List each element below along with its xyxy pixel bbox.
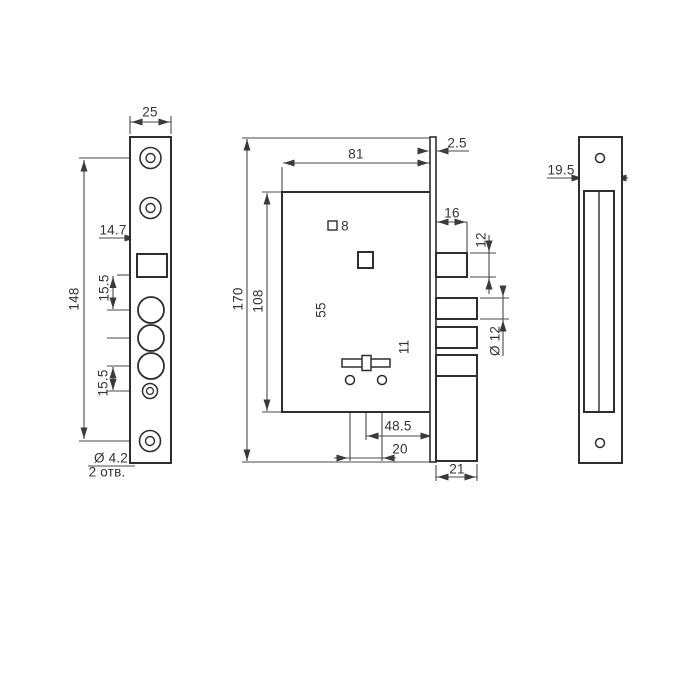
cylinder-screw-hole-right <box>378 376 387 385</box>
faceplate-front-view <box>130 137 171 463</box>
cylinder-screw-hole-left <box>346 376 355 385</box>
dim-latch-height: 12 <box>474 232 488 247</box>
dim-spindle-to-keyhole: 55 <box>314 302 328 317</box>
dim-cutout-offset: 14.7 <box>99 223 126 237</box>
dim-pitch-top: 15.5 <box>97 274 111 301</box>
dim-total-height: 170 <box>231 287 245 310</box>
dim-keyhole-to-screws: 11 <box>397 340 411 354</box>
keyhole-notch <box>362 356 371 371</box>
bolt-hole-1 <box>138 297 164 323</box>
dim-strike-slot-width: 19.5 <box>547 163 574 177</box>
dim-spindle-size: 8 <box>341 219 349 233</box>
dim-faceplate-width: 25 <box>142 105 157 119</box>
lock-body-view <box>282 137 477 462</box>
lock-technical-drawing: 25 14.7 148 15.5 15.5 Ø 4.2 2 отв. 81 2.… <box>0 0 700 700</box>
dim-backset: 48.5 <box>384 419 411 433</box>
bolt-hole-3 <box>138 353 164 379</box>
spindle-hole <box>358 252 373 268</box>
dim-body-height: 108 <box>251 289 265 312</box>
dim-screw-hole-count: 2 отв. <box>89 465 126 479</box>
drawing-canvas <box>0 0 700 700</box>
deadbolt-2 <box>436 327 477 348</box>
dim-bolt-dia: Ø 12 <box>488 326 502 356</box>
latch-cutout <box>137 254 167 277</box>
deadbolt-1 <box>436 298 477 319</box>
dim-bolt-throw: 21 <box>449 462 464 476</box>
dim-faceplate-height: 148 <box>67 287 81 310</box>
dim-screw-hole-dia: Ø 4.2 <box>94 451 128 465</box>
square-symbol <box>328 221 337 230</box>
bolt-hole-2 <box>138 325 164 351</box>
lock-case <box>282 192 432 412</box>
latch-bolt <box>436 253 467 277</box>
bolt-housing <box>436 376 477 461</box>
dim-pitch-bottom: 15.5 <box>96 369 110 396</box>
dim-plate-thickness: 2.5 <box>447 136 466 150</box>
dim-body-width: 81 <box>348 147 363 161</box>
strike-plate-view <box>579 137 622 463</box>
dim-screw-pitch: 20 <box>392 442 407 456</box>
dim-latch-throw: 16 <box>444 206 459 220</box>
deadbolt-3 <box>436 355 477 376</box>
